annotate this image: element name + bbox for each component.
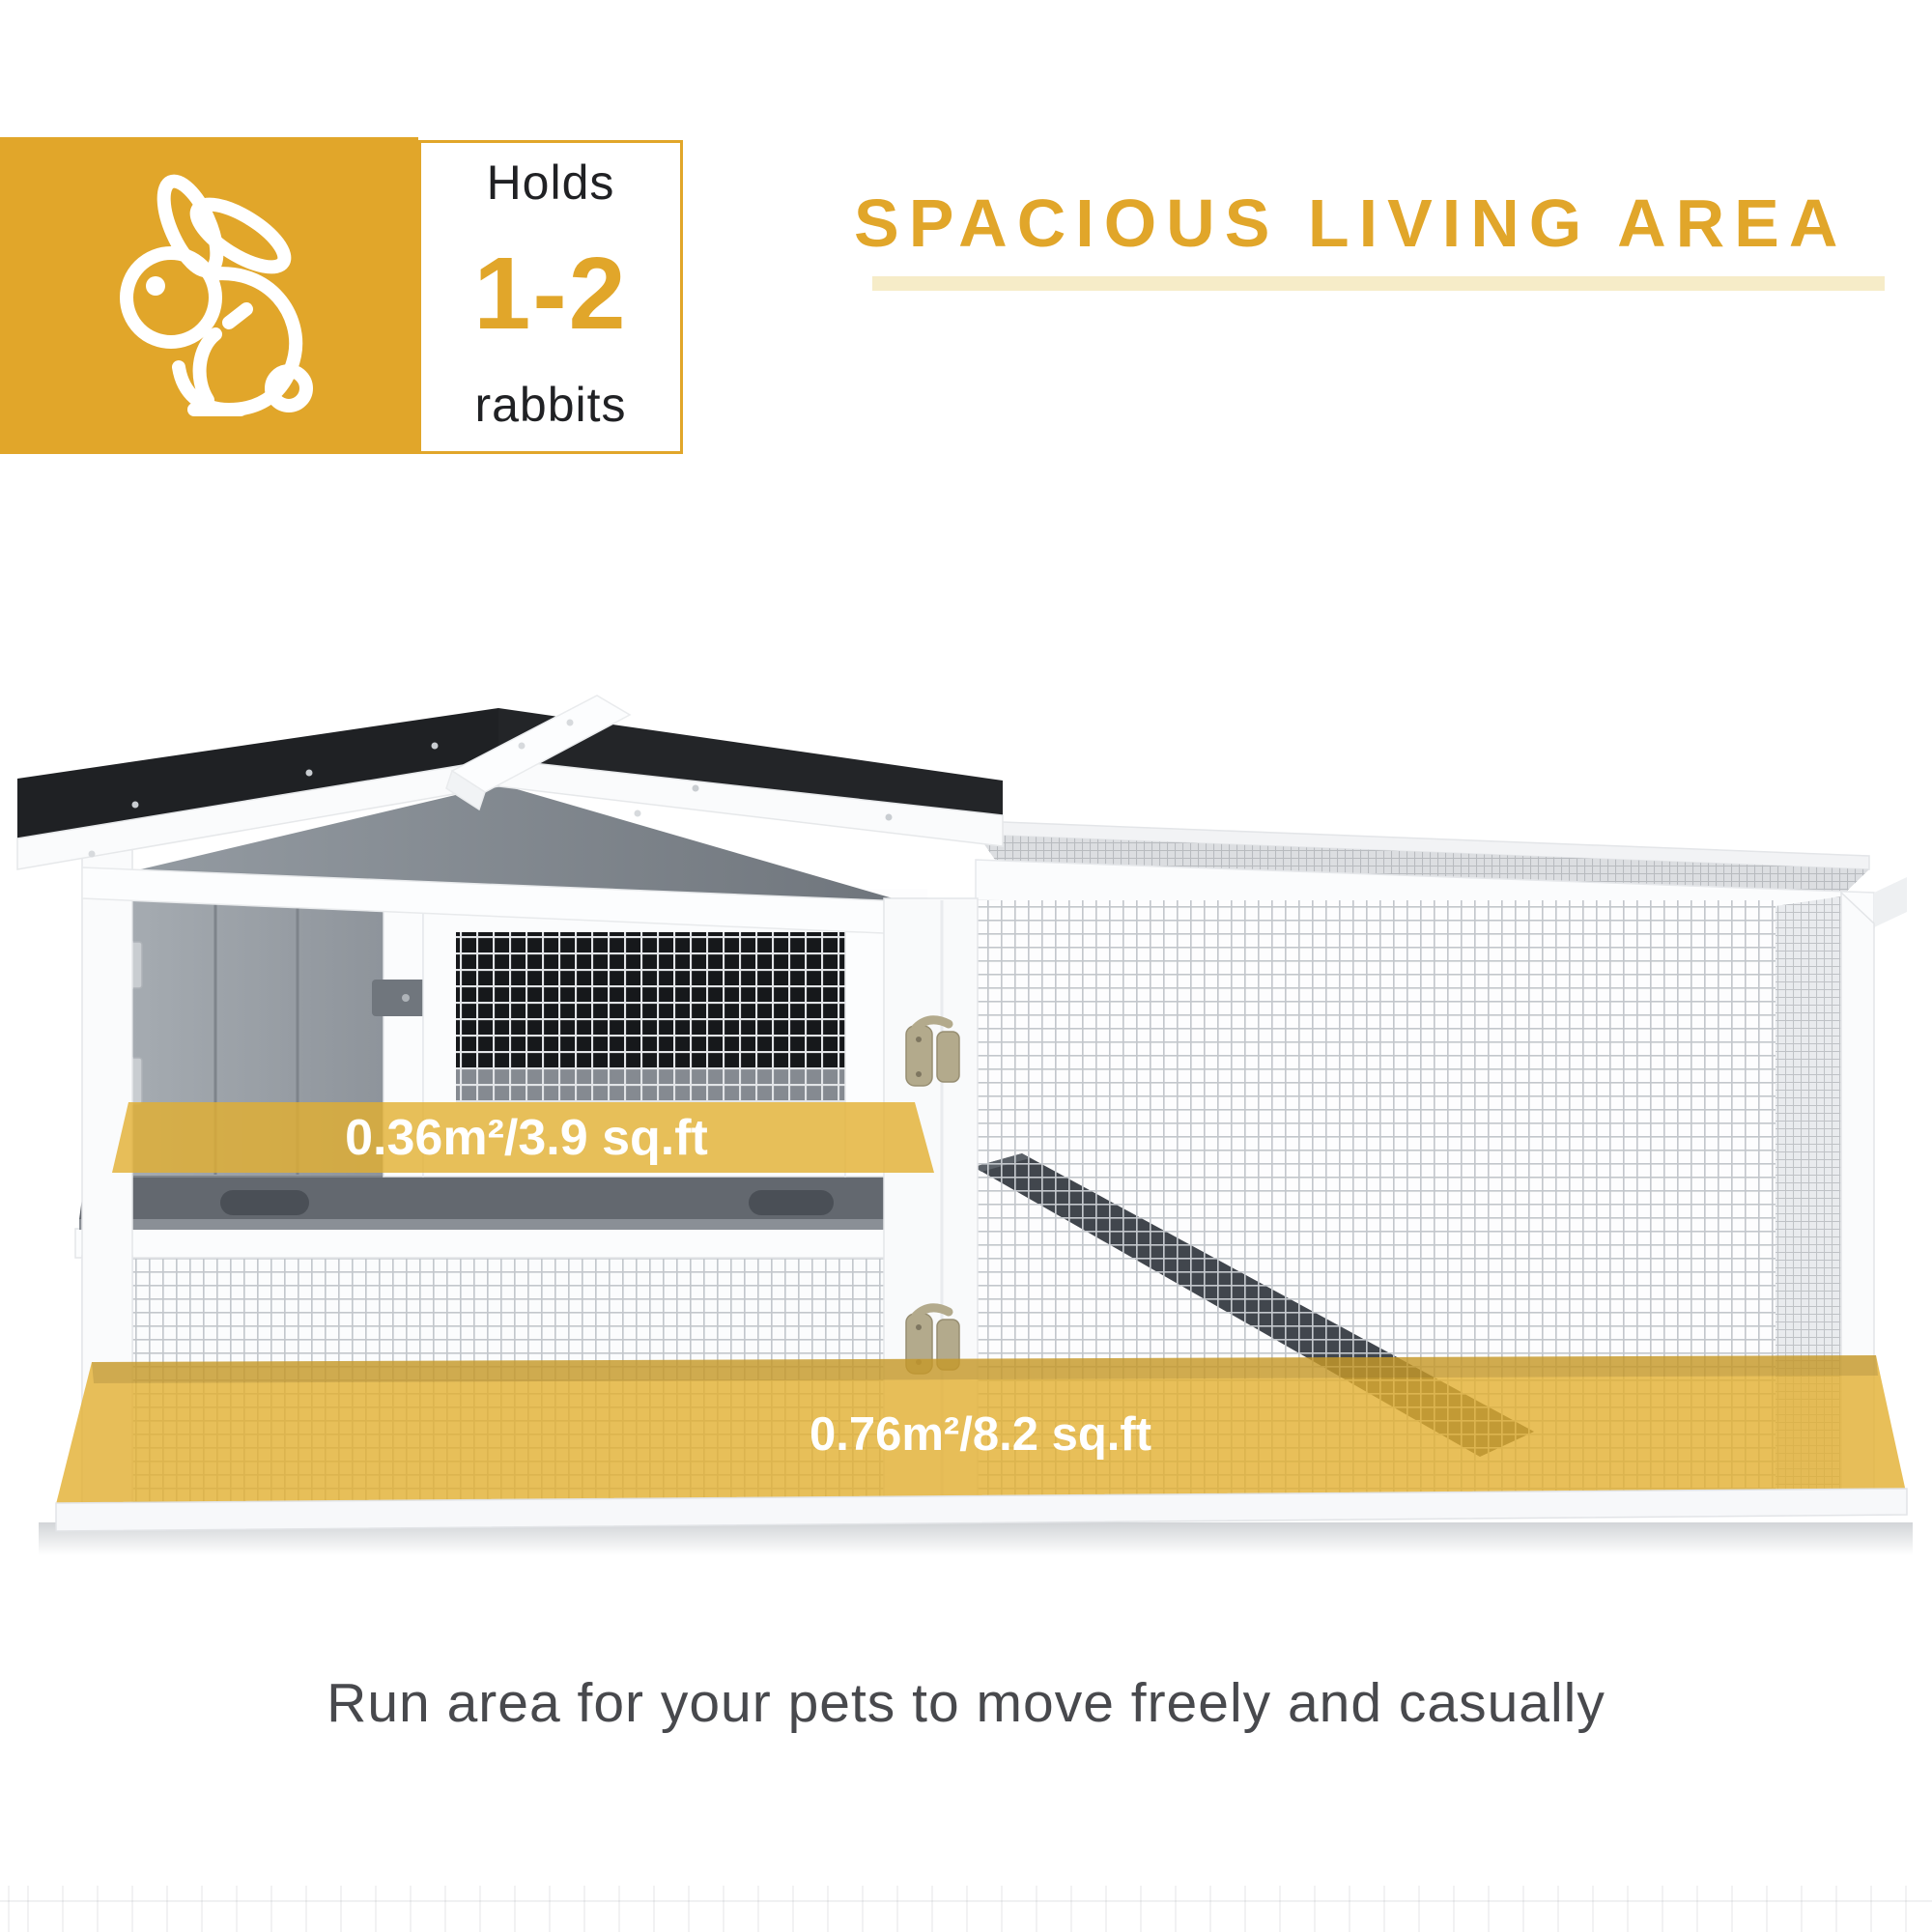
background-grid <box>0 1886 1932 1932</box>
product-infographic: Holds 1-2 rabbits SPACIOUS LIVING AREA <box>0 0 1932 1932</box>
pullout-tray <box>79 1177 935 1230</box>
upper-area-label: 0.36m²/3.9 sq.ft <box>135 1107 918 1169</box>
hutch-photo <box>0 0 1932 1932</box>
hutch-illustration <box>0 0 1932 1932</box>
caption-text: Run area for your pets to move freely an… <box>0 1671 1932 1735</box>
run-area-label: 0.76m²/8.2 sq.ft <box>589 1405 1372 1464</box>
